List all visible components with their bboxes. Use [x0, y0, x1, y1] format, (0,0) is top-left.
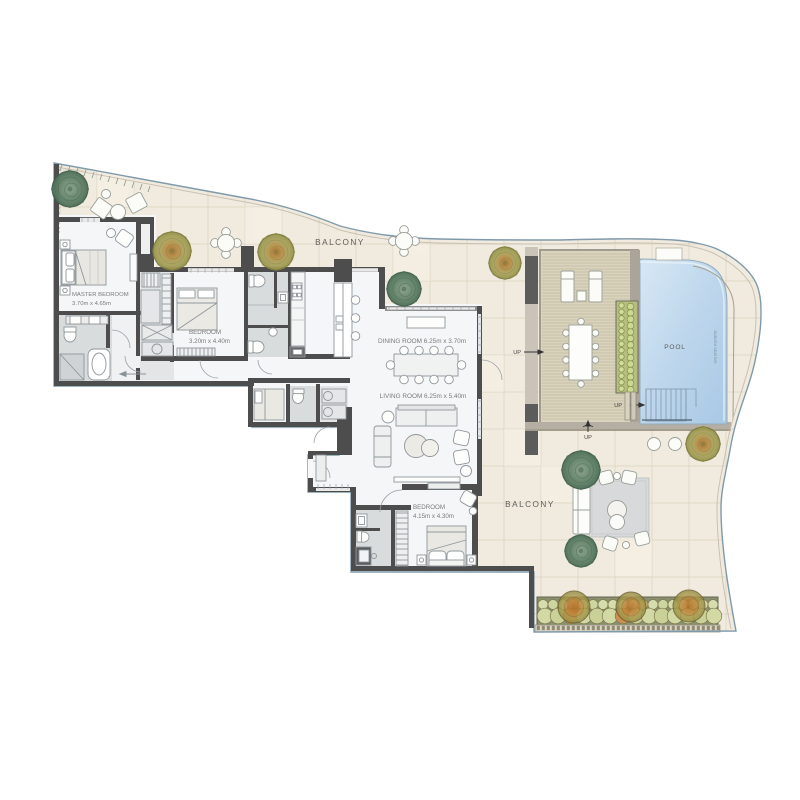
svg-text:BALCONY: BALCONY — [505, 500, 555, 509]
svg-text:BALCONY: BALCONY — [315, 238, 365, 247]
svg-text:4.15m x 4.30m: 4.15m x 4.30m — [413, 513, 454, 520]
svg-text:POOL: POOL — [664, 344, 686, 351]
svg-text:UP: UP — [614, 403, 622, 409]
svg-text:LIVING ROOM 6.25m x 5.40m: LIVING ROOM 6.25m x 5.40m — [380, 393, 467, 400]
svg-text:UP: UP — [513, 350, 521, 356]
svg-text:DINING ROOM 6.25m x 3.70m: DINING ROOM 6.25m x 3.70m — [378, 338, 466, 345]
svg-text:UP: UP — [584, 435, 592, 441]
svg-text:MASTER BEDROOM: MASTER BEDROOM — [72, 292, 129, 298]
svg-text:SUNKEN SEATING: SUNKEN SEATING — [713, 330, 717, 363]
svg-text:3.70m x 4.65m: 3.70m x 4.65m — [72, 301, 111, 307]
svg-text:BEDROOM: BEDROOM — [413, 504, 445, 511]
svg-text:3.20m x 4.40m: 3.20m x 4.40m — [189, 338, 230, 345]
svg-text:BEDROOM: BEDROOM — [189, 329, 221, 336]
